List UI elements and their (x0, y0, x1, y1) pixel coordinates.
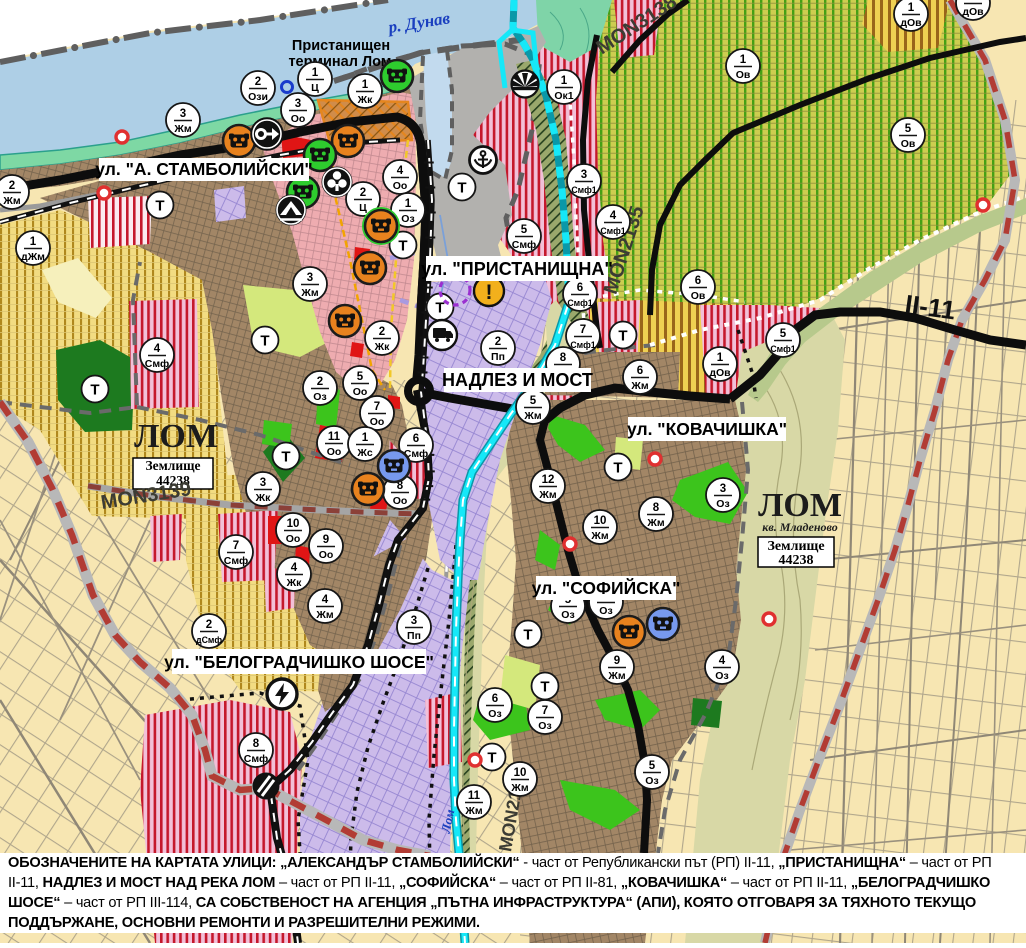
svg-text:Оз: Оз (561, 609, 574, 621)
svg-text:5: 5 (521, 224, 528, 236)
svg-text:Оо: Оо (286, 533, 301, 545)
svg-text:3: 3 (295, 98, 301, 110)
svg-text:Оз: Оз (599, 605, 612, 617)
svg-text:1: 1 (561, 75, 568, 87)
svg-text:Жм: Жм (173, 123, 191, 135)
svg-text:Жм: Жм (607, 670, 625, 682)
svg-text:Оо: Оо (327, 446, 342, 458)
svg-text:Жк: Жк (357, 94, 373, 106)
svg-text:10: 10 (287, 518, 300, 530)
svg-text:11: 11 (468, 790, 481, 802)
svg-text:4: 4 (719, 655, 726, 667)
svg-text:8: 8 (560, 352, 567, 364)
svg-text:Оз: Оз (715, 670, 728, 682)
svg-text:9: 9 (323, 534, 329, 546)
svg-text:1: 1 (362, 79, 369, 91)
svg-text:Ок1: Ок1 (554, 90, 573, 102)
svg-text:8: 8 (653, 502, 660, 514)
svg-text:1: 1 (717, 352, 724, 364)
svg-text:Жм: Жм (510, 782, 528, 794)
svg-text:Оз: Оз (313, 391, 326, 403)
svg-text:Смф1: Смф1 (770, 344, 795, 354)
svg-text:ул. "А. СТАМБОЛИЙСКИ": ул. "А. СТАМБОЛИЙСКИ" (95, 158, 312, 179)
svg-text:11: 11 (328, 431, 341, 443)
svg-text:9: 9 (614, 655, 620, 667)
svg-text:Т: Т (260, 333, 269, 350)
svg-text:1: 1 (30, 236, 37, 248)
svg-text:Ов: Ов (901, 138, 916, 150)
svg-text:дОв: дОв (900, 17, 922, 29)
svg-text:3: 3 (307, 272, 313, 284)
svg-text:12: 12 (542, 474, 555, 486)
svg-text:8: 8 (253, 738, 260, 750)
svg-text:ЛОМ: ЛОМ (134, 418, 218, 455)
svg-text:2: 2 (255, 76, 261, 88)
svg-text:1: 1 (312, 67, 319, 79)
svg-text:Смф1: Смф1 (570, 340, 595, 350)
svg-text:!: ! (486, 281, 493, 304)
svg-text:Оо: Оо (370, 416, 385, 428)
svg-text:Жм: Жм (538, 489, 556, 501)
svg-text:Оо: Оо (319, 549, 334, 561)
svg-text:3: 3 (260, 477, 266, 489)
svg-text:5: 5 (649, 760, 656, 772)
svg-text:Т: Т (155, 198, 164, 215)
svg-text:Смф: Смф (145, 358, 169, 370)
svg-text:Смф1: Смф1 (567, 298, 592, 308)
svg-text:Жс: Жс (356, 447, 372, 459)
svg-text:1: 1 (908, 2, 915, 14)
svg-text:Т: Т (281, 449, 290, 466)
svg-text:7: 7 (580, 324, 586, 336)
svg-text:Оо: Оо (393, 180, 408, 192)
svg-text:3: 3 (180, 108, 186, 120)
svg-text:Оз: Оз (538, 720, 551, 732)
svg-text:2: 2 (360, 187, 366, 199)
svg-text:дОв: дОв (709, 367, 731, 379)
svg-text:Т: Т (435, 300, 444, 317)
svg-text:6: 6 (492, 693, 498, 705)
svg-text:ул. "БЕЛОГРАДЧИШКО ШОСЕ": ул. "БЕЛОГРАДЧИШКО ШОСЕ" (164, 652, 434, 672)
svg-text:Ц: Ц (359, 202, 367, 214)
svg-text:Т: Т (540, 679, 549, 696)
svg-text:ул. "СОФИЙСКА": ул. "СОФИЙСКА" (532, 577, 681, 598)
svg-text:Пп: Пп (407, 630, 421, 642)
svg-text:3: 3 (411, 615, 417, 627)
svg-text:Смф: Смф (512, 239, 536, 251)
svg-text:Жм: Жм (646, 517, 664, 529)
svg-text:Жм: Жм (464, 805, 482, 817)
svg-text:ул. "ПРИСТАНИЩНА": ул. "ПРИСТАНИЩНА" (421, 259, 613, 279)
svg-text:1: 1 (970, 0, 977, 3)
svg-text:дСмф: дСмф (196, 635, 222, 645)
svg-text:Оз: Оз (716, 498, 729, 510)
svg-text:Смф1: Смф1 (571, 185, 596, 195)
svg-text:Ов: Ов (736, 69, 751, 81)
svg-text:5: 5 (530, 395, 537, 407)
svg-text:10: 10 (514, 767, 527, 779)
svg-text:Т: Т (487, 750, 496, 767)
svg-text:Землище: Землище (767, 539, 824, 554)
svg-text:Оз: Оз (401, 213, 414, 225)
svg-text:1: 1 (362, 432, 369, 444)
svg-text:Жк: Жк (286, 577, 302, 589)
svg-text:4: 4 (610, 210, 617, 222)
svg-text:Т: Т (618, 328, 627, 345)
svg-text:Пп: Пп (491, 351, 505, 363)
svg-text:10: 10 (594, 515, 607, 527)
svg-text:Жм: Жм (300, 287, 318, 299)
svg-text:Смф: Смф (244, 753, 268, 765)
svg-text:Жм: Жм (590, 530, 608, 542)
svg-text:Ц: Ц (311, 82, 319, 94)
svg-text:Землище: Землище (145, 458, 200, 473)
svg-text:Жк: Жк (255, 492, 271, 504)
svg-text:7: 7 (542, 705, 548, 717)
svg-text:Т: Т (457, 180, 466, 197)
svg-text:Оо: Оо (291, 113, 306, 125)
svg-text:7: 7 (233, 540, 239, 552)
svg-text:2: 2 (206, 619, 212, 631)
svg-text:6: 6 (637, 365, 643, 377)
svg-text:Смф1: Смф1 (600, 226, 625, 236)
svg-text:Ози: Ози (248, 91, 268, 103)
svg-text:4: 4 (291, 562, 298, 574)
svg-text:5: 5 (905, 123, 912, 135)
svg-text:Оо: Оо (353, 386, 368, 398)
svg-text:Жм: Жм (630, 380, 648, 392)
svg-text:Оз: Оз (645, 775, 658, 787)
svg-text:Смф: Смф (224, 555, 248, 567)
svg-text:5: 5 (357, 371, 364, 383)
svg-text:Оз: Оз (488, 708, 501, 720)
svg-text:6: 6 (413, 433, 419, 445)
svg-text:Ов: Ов (691, 290, 706, 302)
svg-text:44238: 44238 (779, 553, 814, 568)
svg-text:2: 2 (317, 376, 323, 388)
svg-text:2: 2 (9, 180, 15, 192)
svg-text:ЛОМ: ЛОМ (758, 487, 842, 524)
svg-text:НАДЛЕЗ И МОСТ: НАДЛЕЗ И МОСТ (442, 370, 593, 390)
svg-text:Оо: Оо (393, 495, 408, 507)
svg-text:2: 2 (379, 326, 385, 338)
svg-text:6: 6 (577, 282, 583, 294)
svg-text:4: 4 (154, 343, 161, 355)
svg-text:дЖм: дЖм (21, 251, 45, 263)
svg-text:4: 4 (397, 165, 404, 177)
svg-text:Жк: Жк (374, 341, 390, 353)
svg-text:ул. "КОВАЧИШКА": ул. "КОВАЧИШКА" (627, 419, 787, 439)
svg-text:3: 3 (720, 483, 726, 495)
svg-text:кв. Младеново: кв. Младеново (762, 520, 837, 534)
svg-text:4: 4 (322, 594, 329, 606)
svg-text:Жм: Жм (315, 609, 333, 621)
svg-text:Т: Т (398, 238, 407, 255)
svg-text:2: 2 (495, 336, 501, 348)
svg-text:дОв: дОв (962, 6, 984, 18)
svg-text:1: 1 (740, 54, 747, 66)
svg-text:Жм: Жм (2, 195, 20, 207)
svg-text:Т: Т (523, 627, 532, 644)
svg-text:7: 7 (374, 401, 380, 413)
svg-text:Т: Т (613, 460, 622, 477)
svg-text:5: 5 (780, 328, 787, 340)
svg-text:Пристанищен: Пристанищен (292, 38, 390, 54)
svg-text:1: 1 (405, 198, 412, 210)
svg-text:6: 6 (695, 275, 701, 287)
svg-text:Т: Т (90, 382, 99, 399)
svg-text:Жм: Жм (523, 410, 541, 422)
svg-text:3: 3 (581, 169, 587, 181)
